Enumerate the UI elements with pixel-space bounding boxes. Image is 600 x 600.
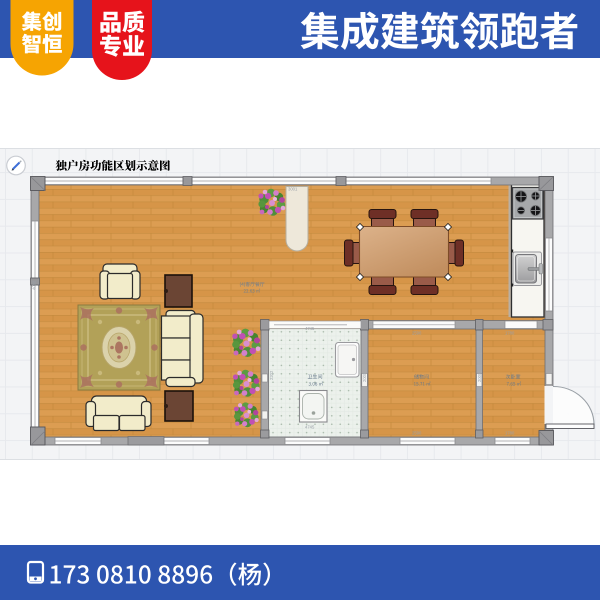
svg-text:2590: 2590 [412,431,422,436]
svg-text:3001: 3001 [288,187,298,192]
svg-text:2202: 2202 [269,370,274,380]
svg-text:4745: 4745 [305,326,315,331]
svg-text:4088: 4088 [32,280,37,290]
svg-text:2000: 2000 [477,372,482,382]
svg-text:2590: 2590 [412,331,422,336]
svg-text:1780: 1780 [505,331,515,336]
svg-text:4745: 4745 [305,425,315,430]
svg-text:1780: 1780 [505,431,515,436]
svg-text:2000: 2000 [362,372,367,382]
